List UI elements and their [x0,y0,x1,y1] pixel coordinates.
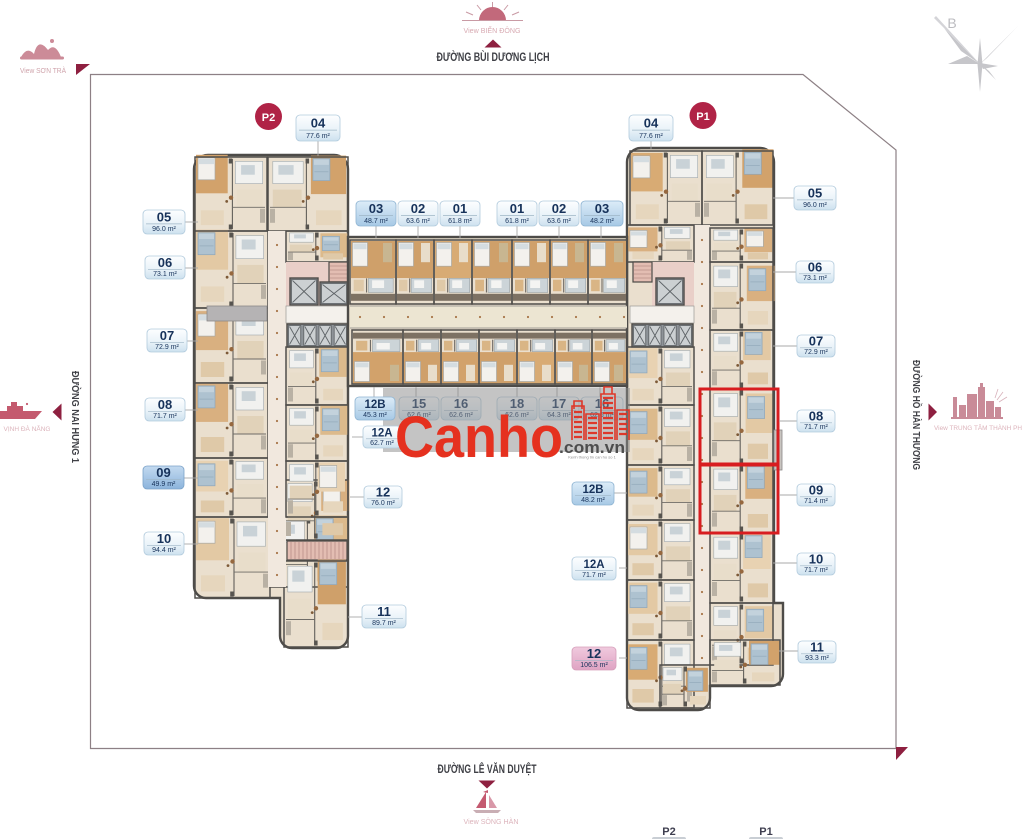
svg-text:P2: P2 [662,826,675,838]
svg-text:10: 10 [809,552,823,567]
svg-text:93.3 m²: 93.3 m² [805,655,829,662]
svg-text:11: 11 [377,604,391,619]
svg-text:48.2 m²: 48.2 m² [590,218,614,225]
svg-text:09: 09 [156,465,170,480]
svg-text:05: 05 [157,210,171,225]
svg-text:71.7 m²: 71.7 m² [804,424,828,431]
svg-text:04: 04 [644,116,659,131]
svg-text:ĐƯỜNG LÊ VĂN DUYỆT: ĐƯỜNG LÊ VĂN DUYỆT [438,763,537,776]
svg-text:96.0 m²: 96.0 m² [152,226,176,233]
svg-text:61.8 m²: 61.8 m² [505,218,529,225]
svg-text:ĐƯỜNG BÙI DƯƠNG LỊCH: ĐƯỜNG BÙI DƯƠNG LỊCH [437,51,550,64]
svg-text:12B: 12B [364,399,385,411]
svg-text:Kenh thong tin can ho so 1: Kenh thong tin can ho so 1 [568,455,616,460]
svg-text:08: 08 [809,409,823,424]
svg-text:Canho: Canho [395,405,563,470]
svg-text:View TRUNG TÂM THÀNH PH: View TRUNG TÂM THÀNH PH [934,423,1022,432]
svg-text:12A: 12A [583,559,604,571]
svg-text:View SƠN TRÀ: View SƠN TRÀ [20,66,66,75]
svg-text:71.7 m²: 71.7 m² [153,413,177,420]
svg-text:62.7 m²: 62.7 m² [370,440,394,447]
svg-text:71.4 m²: 71.4 m² [804,498,828,505]
svg-text:94.4 m²: 94.4 m² [152,547,176,554]
svg-text:P1: P1 [759,826,772,838]
svg-text:73.1 m²: 73.1 m² [803,275,827,282]
svg-text:ĐƯỜNG HỒ HÀN THƯƠNG: ĐƯỜNG HỒ HÀN THƯƠNG [910,360,923,470]
svg-text:08: 08 [158,397,172,412]
svg-text:B: B [947,15,956,31]
svg-text:05: 05 [808,186,822,201]
svg-text:72.9 m²: 72.9 m² [804,349,828,356]
svg-text:12: 12 [376,485,390,500]
svg-text:09: 09 [809,483,823,498]
svg-text:73.1 m²: 73.1 m² [153,271,177,278]
svg-text:02: 02 [552,201,566,216]
svg-text:P2: P2 [262,112,275,124]
svg-text:07: 07 [160,328,174,343]
svg-text:63.6 m²: 63.6 m² [547,218,571,225]
svg-text:View SÔNG HÀN: View SÔNG HÀN [464,817,519,826]
svg-text:06: 06 [808,260,822,275]
svg-text:12: 12 [587,646,601,661]
svg-text:77.6 m²: 77.6 m² [306,133,330,140]
svg-text:96.0 m²: 96.0 m² [803,202,827,209]
svg-text:63.6 m²: 63.6 m² [406,218,430,225]
svg-text:76.0 m²: 76.0 m² [371,500,395,507]
svg-text:ĐƯỜNG NAI HƯNG 1: ĐƯỜNG NAI HƯNG 1 [69,371,82,463]
svg-text:48.2 m²: 48.2 m² [581,497,605,504]
svg-text:71.7 m²: 71.7 m² [582,572,606,579]
svg-text:48.7 m²: 48.7 m² [364,218,388,225]
svg-text:View BIỂN ĐÔNG: View BIỂN ĐÔNG [464,26,521,35]
svg-text:04: 04 [311,116,326,131]
svg-text:11: 11 [810,640,824,655]
svg-text:02: 02 [411,201,425,216]
svg-text:49.9 m²: 49.9 m² [152,481,176,488]
svg-text:45.3 m²: 45.3 m² [363,412,387,419]
svg-text:P1: P1 [696,111,709,123]
svg-text:12A: 12A [371,428,392,440]
svg-text:07: 07 [809,334,823,349]
svg-text:72.9 m²: 72.9 m² [155,344,179,351]
svg-text:89.7 m²: 89.7 m² [372,620,396,627]
svg-text:61.8 m²: 61.8 m² [448,218,472,225]
svg-text:77.6 m²: 77.6 m² [639,133,663,140]
svg-text:106.5 m²: 106.5 m² [580,662,608,669]
svg-text:03: 03 [369,201,383,216]
svg-text:01: 01 [510,201,524,216]
svg-text:12B: 12B [582,484,603,496]
svg-text:03: 03 [595,201,609,216]
svg-text:VỊNH ĐÀ NẴNG: VỊNH ĐÀ NẴNG [4,424,51,433]
svg-text:71.7 m²: 71.7 m² [804,567,828,574]
svg-text:06: 06 [158,255,172,270]
svg-text:10: 10 [157,531,171,546]
svg-text:01: 01 [453,201,467,216]
